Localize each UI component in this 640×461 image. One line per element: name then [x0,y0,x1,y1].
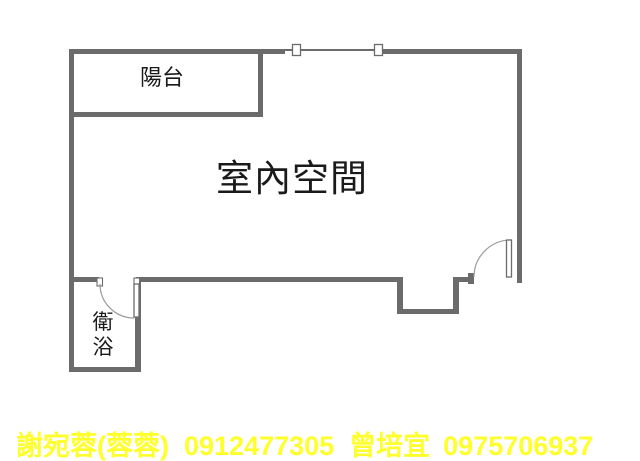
window-marker-right-icon [375,45,383,56]
entry-door-jamb [468,273,474,284]
entry-door-swing-arc-icon [474,240,511,277]
top-wall-right-segment [383,49,522,54]
agent1-phone: 0912477305 [184,431,334,461]
bottom-wall-right-segment [453,277,469,282]
walls [69,49,522,372]
entry-door-leaf-icon [507,240,512,277]
left-wall [69,49,74,372]
agent2-name: 曾培宜 [349,424,430,461]
right-wall [517,49,522,283]
bottom-wall-mid-segment [136,277,403,282]
contact-footer: 謝宛蓉(蓉蓉) 0912477305 曾培宜 0975706937 [16,424,636,461]
floor-plan-image: 陽台 室內空間 衛 浴 謝宛蓉(蓉蓉) 0912477305 曾培宜 09757… [0,0,640,461]
notch-right-wall [453,282,459,314]
indoor-space-label: 室內空間 [216,158,368,199]
top-wall-left-segment [69,49,285,54]
balcony-label: 陽台 [140,65,184,90]
bathroom-bottom-wall [69,367,141,372]
window-marker-left-icon [293,45,301,56]
entry-door [468,240,512,284]
agent2-phone: 0975706937 [443,431,593,461]
bathroom-label-line2: 浴 [93,336,114,359]
bathroom-label-line1: 衛 [93,311,114,334]
floor-plan-drawing: 陽台 室內空間 衛 浴 [0,0,640,461]
window [285,45,383,56]
balcony-right-wall [258,49,263,117]
notch-bottom-wall [397,309,459,314]
balcony-bottom-wall [69,112,263,117]
bathroom-door-leaf-icon [134,284,139,317]
bottom-wall-left-segment [69,277,99,282]
agent1-name: 謝宛蓉(蓉蓉) [16,424,169,461]
